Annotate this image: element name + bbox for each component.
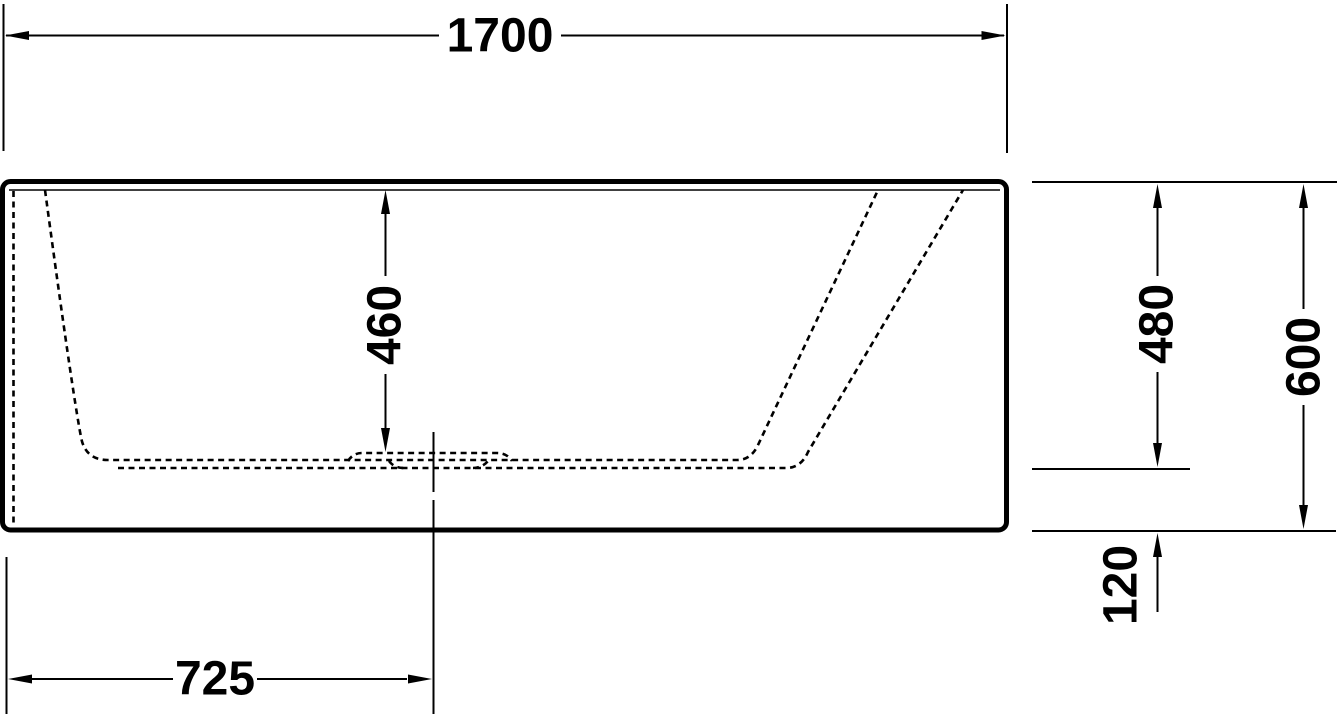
dim-label-base-height: 120: [1095, 545, 1148, 625]
dimension-inner-depth: 460: [359, 190, 412, 452]
dim-label-rim-to-inner-floor: 480: [1131, 284, 1184, 364]
arrowhead-right-icon: [408, 675, 432, 684]
dim-label-overall-length: 1700: [447, 10, 554, 63]
dim-label-inner-depth: 460: [359, 285, 412, 365]
arrowhead-up-icon: [1299, 184, 1308, 208]
arrowhead-right-icon: [982, 31, 1006, 40]
dimension-overall-length: 1700: [4, 4, 1008, 153]
dim-label-drain-center-offset: 725: [175, 653, 255, 706]
arrowhead-down-icon: [1299, 505, 1308, 529]
arrowhead-left-icon: [5, 31, 29, 40]
dimension-overall-height: 600: [1278, 184, 1331, 529]
dimension-rim-to-inner-floor: 480: [1131, 184, 1184, 467]
arrowhead-down-icon: [1153, 443, 1162, 467]
bathtub-outline: [3, 182, 1007, 531]
arrowhead-up-icon: [1153, 184, 1162, 208]
bathtub-side-elevation-drawing: 1700 460 480: [0, 0, 1338, 717]
tub-outer-shell: [3, 182, 1007, 531]
arrowhead-down-icon: [381, 428, 390, 452]
arrowhead-up-icon: [1153, 533, 1162, 557]
technical-drawing-page: 1700 460 480: [0, 0, 1338, 717]
inner-basin-dashed-contour: [14, 190, 964, 524]
basin-inner-wall-contour: [45, 190, 878, 460]
dimension-base-height: 120: [1095, 533, 1163, 625]
arrowhead-up-icon: [381, 190, 390, 214]
dim-label-overall-height: 600: [1278, 317, 1331, 397]
dimension-drain-center-offset: 725: [7, 557, 433, 714]
basin-outer-wall-contour: [118, 190, 963, 468]
arrowhead-left-icon: [8, 675, 32, 684]
